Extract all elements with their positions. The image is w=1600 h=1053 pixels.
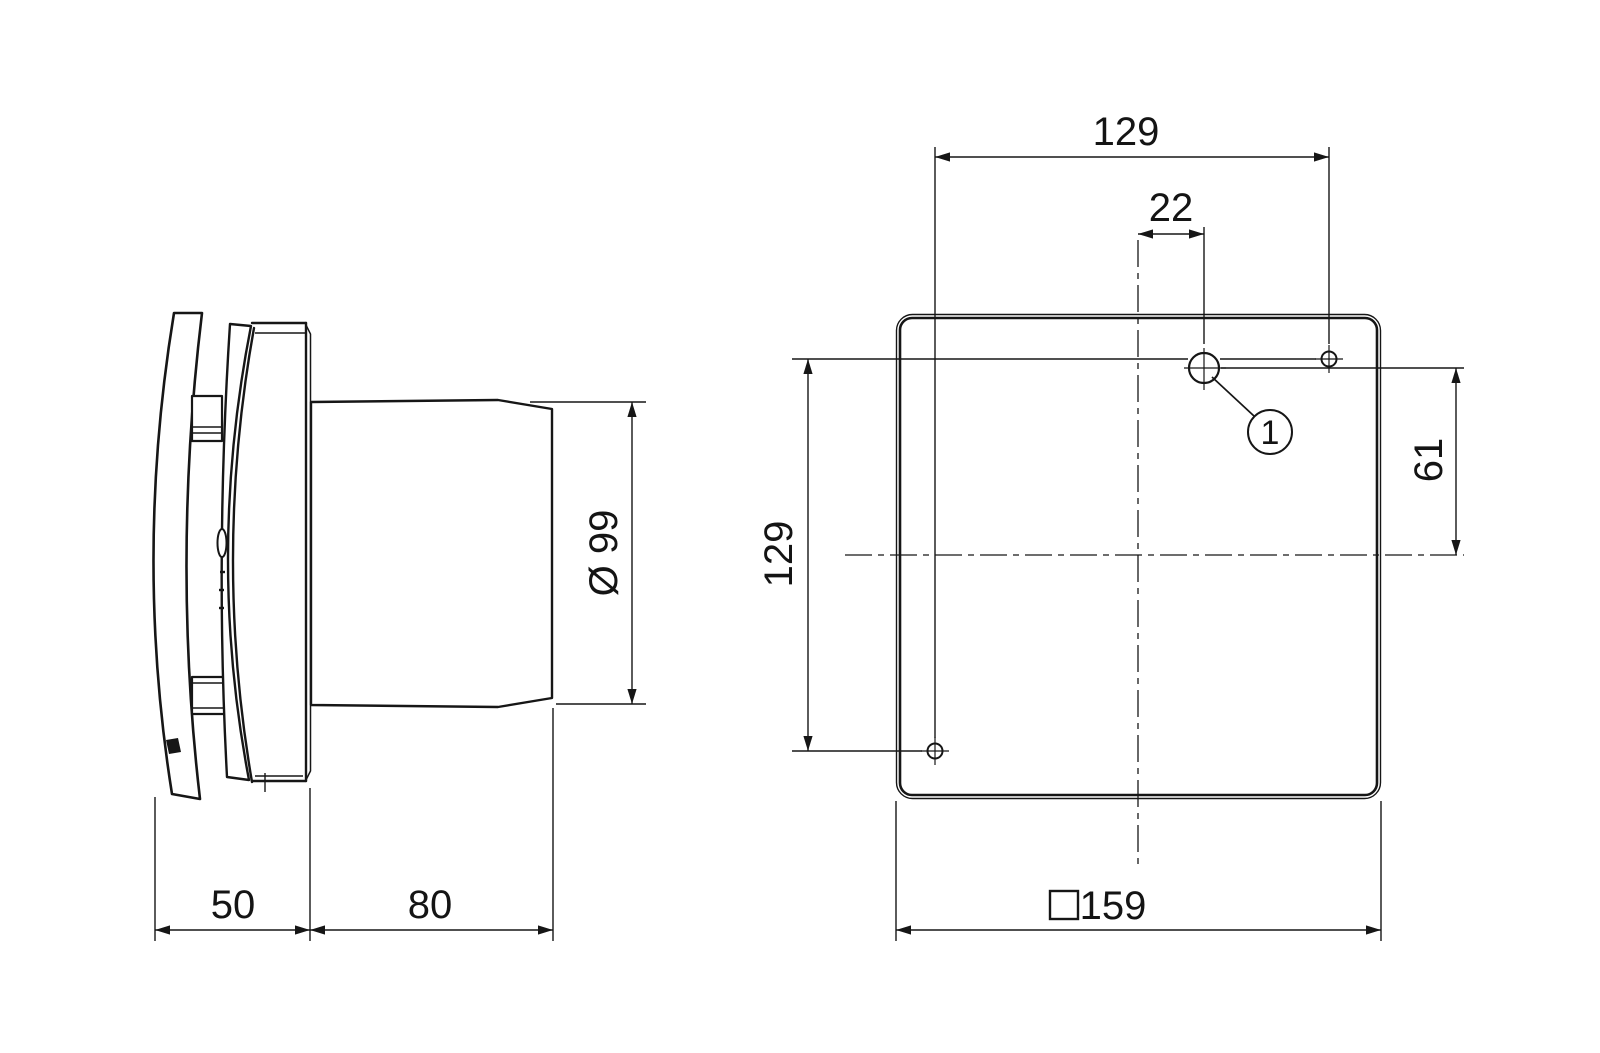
- mounting-hole-top-right: [1315, 345, 1343, 373]
- dim-front-depth-text: 50: [211, 883, 256, 927]
- dimension-front-depth: 50: [155, 788, 310, 941]
- housing-body: [233, 323, 311, 792]
- front-cover-profile: [153, 313, 202, 799]
- dim-hole-offset-vertical-text: 61: [1407, 438, 1451, 483]
- dim-hole-spacing-vertical-text: 129: [757, 521, 801, 588]
- upper-mounting-tab: [192, 396, 222, 441]
- dim-duct-diameter-text: Ø 99: [582, 510, 626, 597]
- dim-hole-spacing-horizontal-text: 129: [1093, 110, 1160, 154]
- dim-plate-size-text: 159: [1080, 884, 1147, 928]
- dim-duct-length-text: 80: [408, 883, 453, 927]
- cover-edge-knob-detail: [218, 529, 227, 557]
- dimension-hole-offset-vertical: 61: [1221, 368, 1464, 555]
- duct-spigot: [311, 400, 552, 707]
- lower-mounting-tab: [192, 677, 226, 714]
- side-view: 50 80 Ø 99: [153, 313, 646, 941]
- technical-drawing-canvas: 50 80 Ø 99: [0, 0, 1600, 1053]
- callout-number: 1: [1261, 414, 1280, 452]
- mounting-hole-bottom-left: [921, 737, 949, 765]
- dim-hole-offset-horizontal-text: 22: [1149, 186, 1194, 230]
- front-view: 1 129 22 129 61: [757, 110, 1464, 941]
- callout-leader-line: [1212, 377, 1254, 416]
- dimension-hole-offset-horizontal: 22: [1138, 186, 1204, 344]
- dimension-plate-size: 159: [896, 801, 1381, 941]
- square-symbol-icon: [1050, 891, 1078, 919]
- item-callout-balloon: 1: [1212, 377, 1292, 454]
- dimension-duct-length: 80: [310, 708, 553, 941]
- technical-drawing-page: 50 80 Ø 99: [0, 0, 1600, 1053]
